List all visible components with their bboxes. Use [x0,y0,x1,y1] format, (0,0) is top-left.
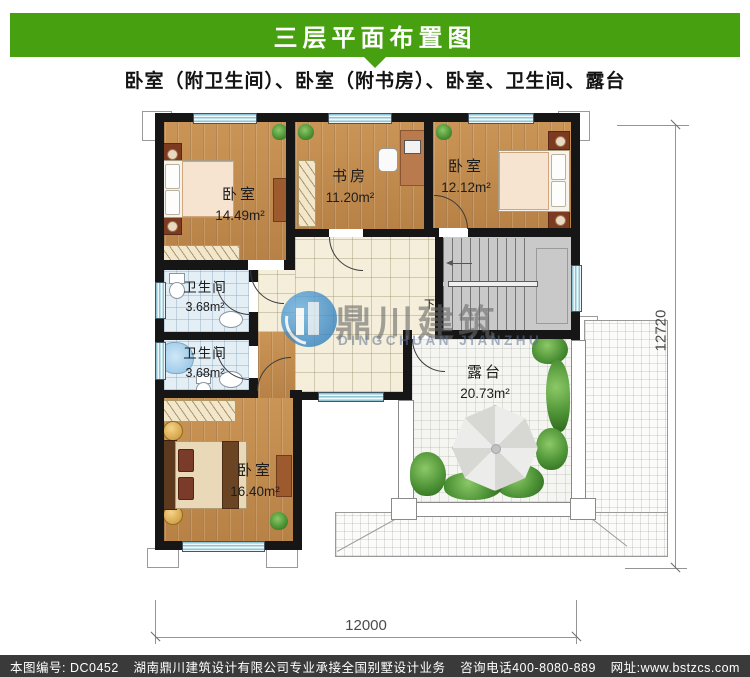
pillow [165,164,180,189]
room-name: 卧室 [422,156,510,178]
room-area: 12.12m² [422,178,510,198]
exterior-roof-tiles-bottom [335,512,668,557]
corner-mark [147,548,179,568]
room-name: 露台 [430,362,540,384]
floor-plan-page: 三层平面布置图 卧室（附卫生间）、卧室（附书房）、卧室、卫生间、露台 [0,0,750,677]
computer-monitor [404,140,421,154]
wall-bath-divider [155,332,258,340]
pillow [178,449,194,472]
pillow [178,477,194,500]
wall-terrace-left [403,330,412,400]
room-name: 卧室 [195,184,285,206]
room-area: 16.40m² [210,482,300,502]
terrace-parapet-right [571,340,586,517]
floor-lamp [163,421,183,441]
room-summary-subtitle: 卧室（附卫生间）、卧室（附书房）、卧室、卫生间、露台 [0,66,750,93]
dimension-height-label: 12720 [653,296,670,366]
room-area: 14.49m² [195,206,285,226]
room-label-bedroom-bl: 卧室 16.40m² [210,460,300,501]
wall-bedroomtr-bottom [433,228,439,237]
dimension-width-label: 12000 [331,617,401,634]
terrace-parapet-bottom [398,502,586,517]
window [571,265,582,312]
stair-direction-arrowhead [446,260,453,266]
room-name: 书房 [305,166,395,188]
nightstand [548,210,570,229]
terrace-plants [546,360,570,432]
wall-study-bottom [363,229,433,237]
room-label-bath1: 卫生间 3.68m² [164,278,246,316]
room-area: 3.68m² [164,364,246,382]
page-title: 三层平面布置图 [274,18,477,53]
window [328,113,392,124]
stair-railing [448,281,538,287]
wardrobe [162,400,236,422]
lamp-icon [167,149,178,160]
room-label-bedroom-tr: 卧室 12.12m² [422,156,510,197]
window [193,113,257,124]
wall-study-bottom [295,229,329,237]
hall-floor [295,237,435,335]
stair-down-label: 下 [424,296,435,312]
lamp-icon [555,136,566,147]
window [468,113,534,124]
wall-bedroomtl-study [286,122,295,270]
title-banner: 三层平面布置图 [10,13,740,57]
stair-landing-outline [536,248,568,324]
room-name: 卫生间 [164,344,246,364]
stair-flight-upper [443,238,531,282]
corner-mark [266,548,298,568]
window [182,541,265,552]
wall-stub [435,330,444,339]
stair-flight-lower [443,286,531,330]
dimension-line-right [675,125,676,568]
wall-bath-right [249,312,258,346]
room-name: 卧室 [210,460,300,482]
room-label-bedroom-tl: 卧室 14.49m² [195,184,285,225]
room-label-terrace: 露台 20.73m² [430,362,540,403]
dimension-line-bottom [155,637,577,638]
pillow [551,154,566,180]
room-label-study: 书房 11.20m² [305,166,395,207]
wall-terrace-top [444,330,580,339]
pillow [551,181,566,207]
pillow [165,190,180,215]
window [318,392,384,402]
lamp-icon [555,215,566,226]
room-label-bath2: 卫生间 3.68m² [164,344,246,382]
umbrella-hub [491,444,501,454]
door-arc-bedroom-tl [250,270,284,304]
footer-bar: 本图编号: DC0452 湖南鼎川建筑设计有限公司专业承接全国别墅设计业务 咨询… [0,655,750,677]
room-area: 3.68m² [164,298,246,316]
room-area: 20.73m² [430,384,540,404]
wall-bedroomtr-bottom [468,228,580,237]
parapet-post [570,498,596,520]
wall-stairs-left [435,237,443,332]
company-line: 湖南鼎川建筑设计有限公司专业承接全国别墅设计业务 [133,657,445,676]
lamp-icon [167,221,178,232]
parapet-post [391,498,417,520]
stair-direction-arrow [452,263,472,264]
nightstand [548,131,570,150]
room-area: 11.20m² [305,188,395,208]
drawing-code: 本图编号: DC0452 [10,657,119,676]
potted-plant-icon [298,124,314,140]
wall-bedroomtl-bottom [284,260,295,270]
potted-plant-icon [436,124,452,140]
website-line: 网址:www.bstzcs.com [611,657,740,676]
terrace-parapet-left [398,400,414,514]
wall-bedroomtl-bottom [155,260,248,270]
wall-bedroombl-top [155,390,256,398]
hall-floor-lower [295,335,412,392]
terrace-plants [536,428,568,470]
terrace-plants [410,452,446,496]
potted-plant-icon [270,512,288,530]
room-name: 卫生间 [164,278,246,298]
phone-line: 咨询电话400-8080-889 [460,657,596,676]
